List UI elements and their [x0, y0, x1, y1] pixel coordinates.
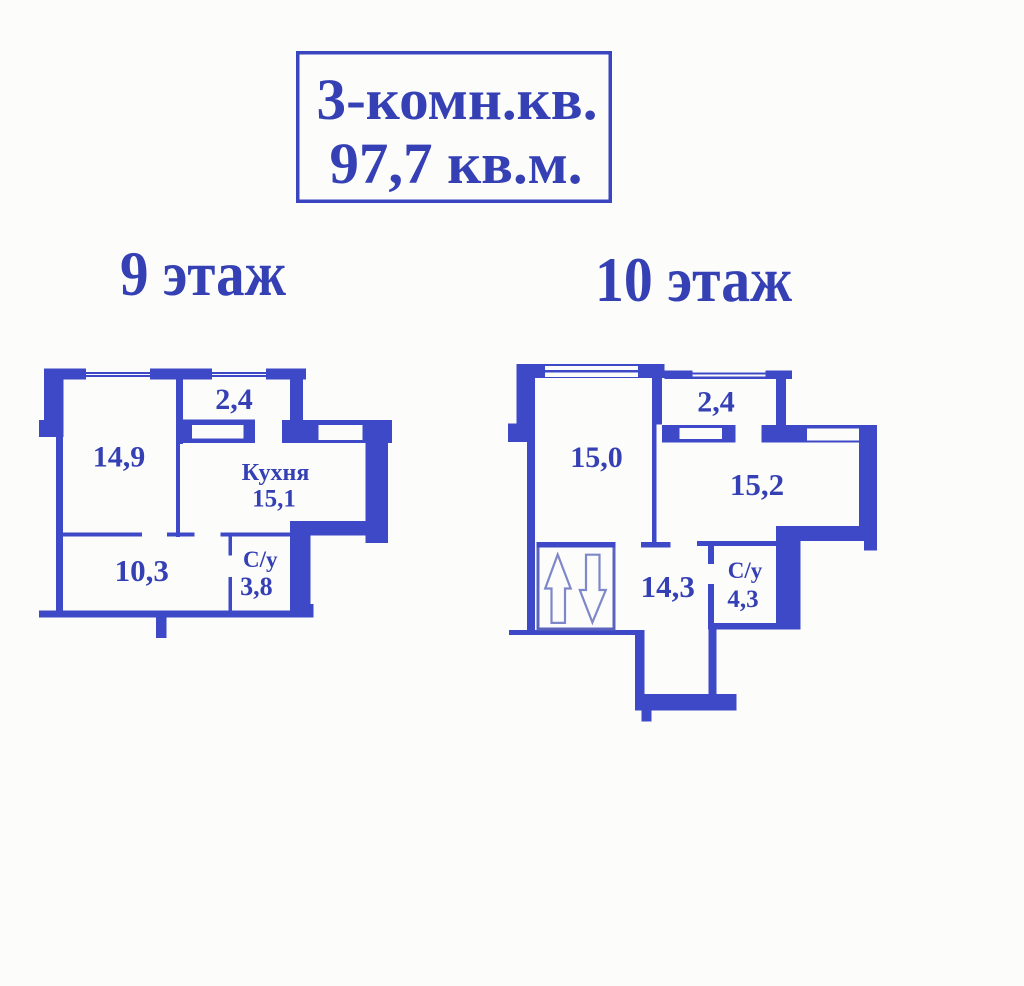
svg-text:14,9: 14,9	[93, 441, 146, 474]
svg-text:С/у: С/у	[243, 547, 278, 572]
svg-text:2,4: 2,4	[697, 386, 735, 419]
svg-text:9 этаж: 9 этаж	[120, 239, 286, 309]
svg-text:С/у: С/у	[728, 558, 763, 583]
svg-text:2,4: 2,4	[215, 383, 253, 416]
svg-text:4,3: 4,3	[727, 586, 758, 613]
svg-text:15,0: 15,0	[570, 441, 623, 474]
svg-text:15,1: 15,1	[252, 486, 296, 513]
svg-text:Кухня: Кухня	[242, 460, 310, 486]
svg-text:14,3: 14,3	[641, 569, 695, 604]
svg-text:3-комн.кв.: 3-комн.кв.	[317, 67, 598, 132]
svg-text:15,2: 15,2	[730, 467, 784, 502]
svg-text:10,3: 10,3	[115, 553, 169, 588]
svg-text:97,7 кв.м.: 97,7 кв.м.	[330, 131, 583, 196]
svg-text:10 этаж: 10 этаж	[595, 245, 792, 315]
svg-text:3,8: 3,8	[240, 572, 273, 601]
